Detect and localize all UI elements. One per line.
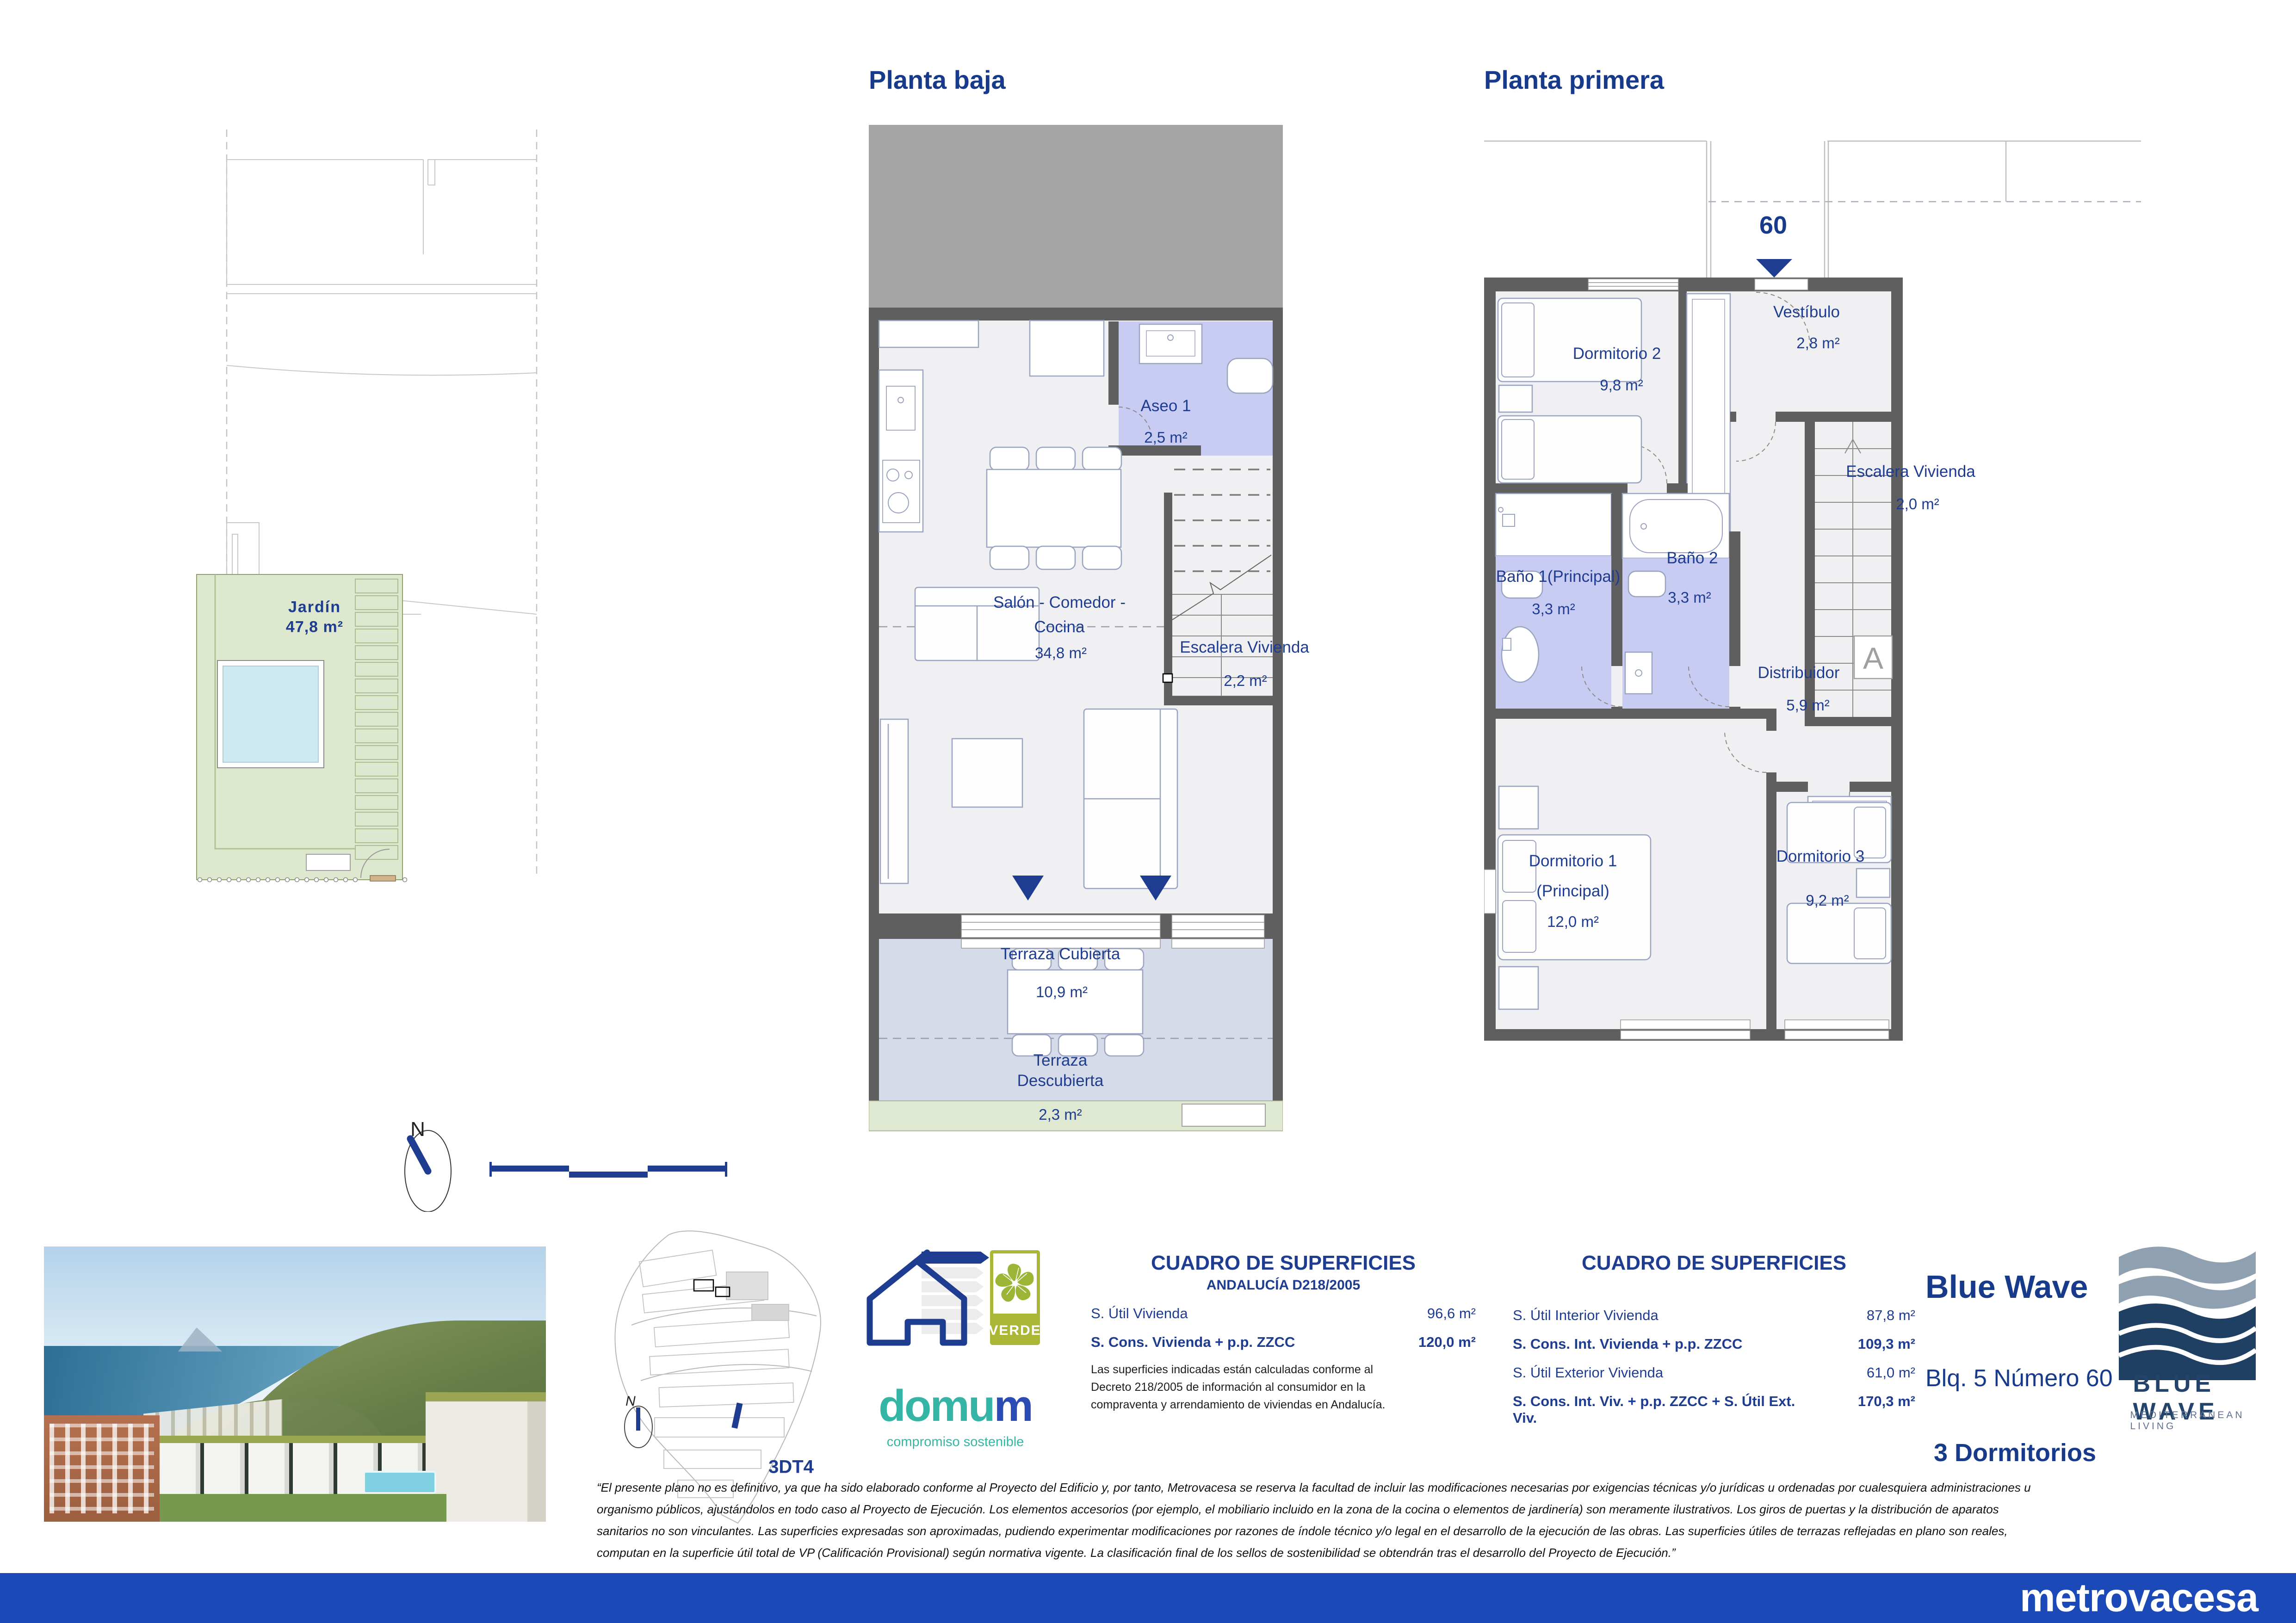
domum-prefix: domu bbox=[879, 1381, 994, 1431]
room-area-terraza-cubierta: 10,9 m² bbox=[1036, 983, 1088, 1001]
room-area-salon: 34,8 m² bbox=[1035, 644, 1087, 662]
room-area-aseo1: 2,5 m² bbox=[1144, 429, 1188, 446]
compass-north-label: N bbox=[410, 1118, 425, 1141]
highlight-block-outline bbox=[694, 1280, 713, 1291]
planta-baja-title: Planta baja bbox=[869, 65, 1006, 95]
room-label-terraza-cubierta: Terraza Cubierta bbox=[1001, 945, 1120, 963]
row-value: 87,8 m² bbox=[1867, 1307, 1915, 1324]
table-row: S. Útil Interior Vivienda 87,8 m² bbox=[1513, 1307, 1915, 1324]
room-label-escalera-pp: Escalera Vivienda bbox=[1846, 463, 1975, 481]
lawn bbox=[160, 1494, 446, 1522]
room-label-salon-1: Salón - Comedor - bbox=[993, 593, 1126, 612]
domum-tagline: compromiso sostenible bbox=[887, 1435, 1024, 1450]
row-value: 109,3 m² bbox=[1858, 1336, 1915, 1352]
room-label-terraza-descubierta-1: Terraza bbox=[1034, 1051, 1088, 1070]
room-area-vestibulo: 2,8 m² bbox=[1796, 334, 1840, 352]
energy-rating-icon: A bbox=[852, 1248, 1005, 1347]
room-label-distribuidor: Distribuidor bbox=[1758, 664, 1840, 682]
project-name: Blue Wave bbox=[1925, 1268, 2088, 1305]
row-label: S. Útil Exterior Vivienda bbox=[1513, 1364, 1663, 1381]
row-value: 120,0 m² bbox=[1418, 1334, 1476, 1351]
section-marker: A bbox=[1854, 636, 1892, 679]
room-label-dormitorio2: Dormitorio 2 bbox=[1573, 345, 1661, 363]
room-label-bano1: Baño 1(Principal) bbox=[1496, 568, 1620, 586]
room-label-dormitorio1-1: Dormitorio 1 bbox=[1529, 852, 1617, 870]
developer-logo: metrovacesa bbox=[2020, 1575, 2258, 1621]
room-area-distribuidor: 5,9 m² bbox=[1786, 697, 1830, 714]
context-lines bbox=[1484, 141, 2141, 278]
surfaces-left-subtitle: ANDALUCÍA D218/2005 bbox=[1091, 1277, 1476, 1293]
svg-text:VERDE: VERDE bbox=[990, 1323, 1040, 1338]
aseo-room bbox=[1108, 321, 1273, 456]
room-label-dormitorio1-2: (Principal) bbox=[1536, 882, 1609, 901]
site-context-garden-drawing bbox=[176, 116, 754, 1212]
blue-wave-logo bbox=[2119, 1243, 2256, 1380]
room-label-dormitorio3: Dormitorio 3 bbox=[1776, 847, 1865, 866]
verde-certificate-badge: VERDE bbox=[990, 1250, 1040, 1345]
scale-bar bbox=[489, 1162, 727, 1178]
foreground-building bbox=[44, 1415, 160, 1522]
garden-area-label: 47,8 m² bbox=[286, 618, 343, 636]
surfaces-table-general: CUADRO DE SUPERFICIES S. Útil Interior V… bbox=[1513, 1252, 1915, 1426]
row-value: 170,3 m² bbox=[1858, 1393, 1915, 1410]
unit-block-number: Blq. 5 Número 60 bbox=[1925, 1364, 2113, 1392]
entry-arrow-icon bbox=[1756, 259, 1792, 278]
aerial-photo bbox=[44, 1247, 546, 1522]
table-row: S. Cons. Int. Vivienda + p.p. ZZCC 109,3… bbox=[1513, 1336, 1915, 1352]
room-area-terraza-descubierta: 2,3 m² bbox=[1039, 1106, 1082, 1123]
domum-logo: domum bbox=[879, 1381, 1032, 1432]
room-area-bano2: 3,3 m² bbox=[1668, 589, 1711, 606]
row-value: 61,0 m² bbox=[1867, 1364, 1915, 1381]
room-label-terraza-descubierta-2: Descubierta bbox=[1017, 1072, 1104, 1090]
plan-sheet: { "sheet": { "plans": { "planta_baja": {… bbox=[0, 0, 2296, 1623]
blue-wave-tagline: MEDITERRANEAN LIVING bbox=[2130, 1410, 2244, 1432]
table-row: S. Cons. Int. Viv. + p.p. ZZCC + S. Útil… bbox=[1513, 1393, 1915, 1426]
ground-floor-windows bbox=[961, 915, 1264, 938]
garden-pavers bbox=[355, 579, 398, 859]
surfaces-table-andalucia: CUADRO DE SUPERFICIES ANDALUCÍA D218/200… bbox=[1091, 1252, 1476, 1413]
table-row: S. Útil Exterior Vivienda 61,0 m² bbox=[1513, 1364, 1915, 1381]
dining-set bbox=[987, 447, 1121, 569]
row-label: S. Útil Interior Vivienda bbox=[1513, 1307, 1659, 1324]
room-area-dormitorio2: 9,8 m² bbox=[1600, 376, 1643, 394]
terrace-dining-set bbox=[1008, 949, 1144, 1056]
surfaces-left-title: CUADRO DE SUPERFICIES bbox=[1091, 1252, 1476, 1275]
surfaces-right-title: CUADRO DE SUPERFICIES bbox=[1513, 1252, 1915, 1275]
row-label: S. Útil Vivienda bbox=[1091, 1305, 1188, 1322]
garden-box bbox=[306, 854, 350, 870]
footer-bar: metrovacesa bbox=[0, 1573, 2296, 1623]
row-label: S. Cons. Int. Vivienda + p.p. ZZCC bbox=[1513, 1336, 1742, 1352]
room-label-vestibulo: Vestíbulo bbox=[1773, 303, 1840, 321]
unit-type: 3 Dormitorios bbox=[1934, 1438, 2096, 1467]
room-label-salon-2: Cocina bbox=[1034, 618, 1085, 636]
room-area-dormitorio1: 12,0 m² bbox=[1547, 913, 1599, 931]
table-row: S. Útil Vivienda 96,6 m² bbox=[1091, 1305, 1476, 1322]
room-label-bano2: Baño 2 bbox=[1667, 549, 1718, 568]
legal-disclaimer: “El presente plano no es definitivo, ya … bbox=[597, 1477, 2031, 1564]
surfaces-note: Las superficies indicadas están calculad… bbox=[1091, 1361, 1476, 1413]
neighbour-block bbox=[869, 125, 1283, 308]
garden-label: Jardín bbox=[288, 599, 341, 617]
map-compass-icon bbox=[625, 1406, 652, 1448]
map-north-label: N bbox=[625, 1394, 636, 1409]
unit-location-marker bbox=[731, 1402, 743, 1429]
row-label: S. Cons. Vivienda + p.p. ZZCC bbox=[1091, 1334, 1295, 1351]
domum-suffix: m bbox=[994, 1381, 1032, 1431]
row-label: S. Cons. Int. Viv. + p.p. ZZCC + S. Útil… bbox=[1513, 1393, 1809, 1426]
room-area-bano1: 3,3 m² bbox=[1532, 600, 1575, 618]
unit-number-label: 60 bbox=[1759, 211, 1787, 240]
row-value: 96,6 m² bbox=[1427, 1305, 1476, 1322]
planta-primera-title: Planta primera bbox=[1484, 65, 1664, 95]
room-area-dormitorio3: 9,2 m² bbox=[1806, 892, 1849, 909]
room-area-escalera-pb: 2,2 m² bbox=[1224, 672, 1267, 690]
pool bbox=[217, 660, 324, 768]
site-map-code: 3DT4 bbox=[768, 1457, 814, 1478]
svg-text:A: A bbox=[1863, 641, 1883, 675]
room-label-escalera-pb: Escalera Vivienda bbox=[1180, 638, 1309, 657]
room-label-aseo1: Aseo 1 bbox=[1141, 397, 1191, 415]
context-outlines bbox=[227, 160, 537, 614]
table-row: S. Cons. Vivienda + p.p. ZZCC 120,0 m² bbox=[1091, 1334, 1476, 1351]
community-pool bbox=[363, 1471, 436, 1494]
gibraltar-rock bbox=[178, 1327, 222, 1351]
room-area-escalera-pp: 2,0 m² bbox=[1896, 495, 1939, 513]
compass-icon bbox=[405, 1130, 451, 1212]
rating-a-arrow bbox=[922, 1252, 989, 1264]
